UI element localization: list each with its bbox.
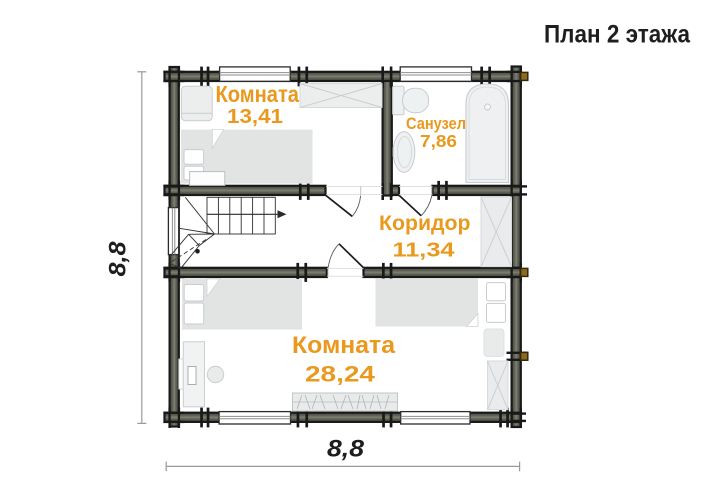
svg-text:План 2 этажа: План 2 этажа bbox=[544, 21, 691, 49]
svg-text:8,8: 8,8 bbox=[105, 241, 132, 277]
svg-text:Комната: Комната bbox=[216, 81, 300, 107]
svg-text:11,34: 11,34 bbox=[393, 240, 456, 262]
svg-text:28,24: 28,24 bbox=[305, 362, 376, 387]
svg-text:Комната: Комната bbox=[292, 332, 395, 359]
svg-text:13,41: 13,41 bbox=[227, 105, 283, 128]
svg-text:7,86: 7,86 bbox=[420, 131, 457, 151]
svg-text:Коридор: Коридор bbox=[379, 211, 471, 235]
svg-text:8,8: 8,8 bbox=[327, 435, 365, 462]
